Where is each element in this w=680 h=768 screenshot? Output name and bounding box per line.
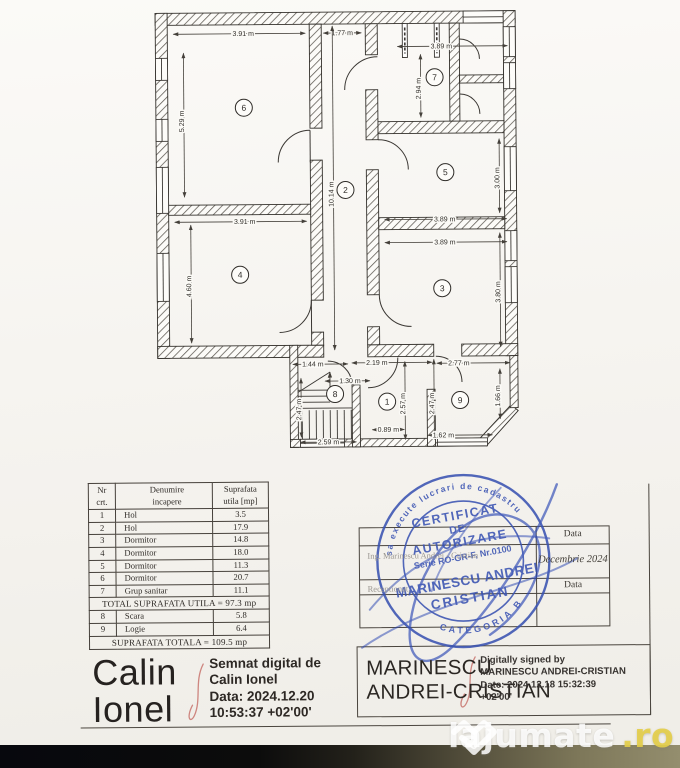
dimension-label: 0.89 m (378, 427, 400, 434)
table-row: 2Hol17.9 (89, 521, 269, 535)
room-table-body: 1Hol3.52Hol17.93Dormitor14.84Dormitor18.… (88, 508, 269, 649)
table-row: 7Grup sanitar11.1 (89, 584, 269, 598)
signer-left-name: Calin Ionel (92, 653, 177, 729)
dimension-label: 3.80 m (495, 281, 502, 303)
sig-line: MARINESCU ANDREI-CRISTIAN (480, 666, 626, 680)
svg-text:8: 8 (333, 389, 338, 399)
table-cell: 6.4 (213, 622, 269, 635)
dimension-label: 3.91 m (233, 31, 255, 38)
total-row: SUPRAFATA TOTALA = 109.5 mp (89, 635, 269, 650)
total-utila-row-cell: TOTAL SUPRAFATA UTILA = 97.3 mp (89, 596, 269, 611)
room-number: 1 (379, 393, 396, 410)
table-cell: 3 (89, 535, 116, 548)
approval-faint-name: Ing. Marinescu Andrei - Cristian (367, 549, 537, 560)
approval-faint-receptionat: Receptionat, (368, 583, 488, 594)
signer-left-name-line1: Calin (92, 653, 177, 691)
lajumate-watermark: lajumate .ro (448, 716, 674, 755)
sig-line: Digitally signed by (480, 654, 626, 668)
plan-room-numbers: 627543819 (230, 69, 469, 412)
dimension-line (397, 46, 507, 47)
table-row: 4Dormitor18.0 (89, 546, 269, 560)
svg-text:4: 4 (238, 270, 243, 280)
dimension-label: 3.89 m (434, 216, 456, 223)
dimension-label: 3.89 m (431, 43, 453, 50)
table-cell: 11.1 (213, 584, 269, 597)
table-cell: 3.5 (213, 508, 269, 521)
table-cell: 14.8 (213, 533, 269, 546)
table-cell: 7 (89, 585, 116, 598)
table-cell: Logie (116, 623, 213, 636)
date-value: Decembrie 2024 (537, 554, 608, 566)
room-number: 2 (337, 181, 354, 198)
sig-line: Date: 2024.12.18 15:32:39 (480, 679, 626, 693)
svg-text:1: 1 (385, 397, 390, 407)
table-cell: 2 (89, 522, 116, 535)
right-signature-details: Digitally signed by MARINESCU ANDREI-CRI… (480, 654, 626, 705)
table-cell: Hol (116, 509, 213, 522)
table-cell: 9 (89, 623, 116, 636)
left-signature-details: Semnat digital de Calin Ionel Data: 2024… (209, 655, 321, 722)
room-number: 7 (426, 69, 443, 86)
table-cell: 17.9 (213, 521, 269, 534)
table-cell: 6 (89, 572, 116, 585)
table-cell: 4 (89, 547, 116, 560)
table-cell: Grup sanitar (116, 584, 213, 597)
table-cell: Dormitor (116, 572, 213, 585)
room-number: 9 (452, 391, 469, 408)
table-row: 9Logie6.4 (89, 622, 269, 636)
dimension-label: 5.29 m (179, 111, 186, 133)
room-number: 3 (434, 280, 451, 297)
dimension-label: 2.47 m (429, 393, 436, 415)
signer-left-name-line2: Ionel (92, 691, 177, 729)
table-cell: Dormitor (116, 534, 213, 547)
sig-line: +02'00' (480, 691, 626, 705)
table-row: 1Hol3.5 (88, 508, 268, 522)
dimension-label: 2.59 m (318, 439, 340, 446)
col-header-nr: Nr crt. (88, 483, 115, 509)
table-cell: 20.7 (213, 571, 269, 584)
dimension-label: 4.60 m (186, 275, 193, 297)
table-cell: Dormitor (116, 546, 213, 559)
room-number: 8 (327, 385, 344, 402)
dimension-label: 1.66 m (495, 385, 502, 407)
dimension-label: 1.62 m (433, 432, 455, 439)
svg-text:5: 5 (443, 167, 448, 177)
dimension-label: 3.00 m (494, 167, 501, 189)
plan-thin-partitions (402, 23, 439, 57)
dimension-label: 10.14 m (328, 181, 335, 207)
dimension-label: 3.89 m (434, 239, 456, 246)
svg-text:7: 7 (432, 72, 437, 82)
lajumate-logo-icon (448, 716, 500, 760)
sig-line: Calin Ionel (209, 672, 321, 689)
total-utila-row: TOTAL SUPRAFATA UTILA = 97.3 mp (89, 596, 269, 611)
data-label-bottom: Data (538, 580, 609, 591)
col-header-area: Suprafata utila [mp] (212, 482, 268, 509)
dimension-label: 1.77 m (332, 30, 354, 37)
svg-text:9: 9 (458, 395, 463, 405)
room-number: 5 (437, 164, 454, 181)
watermark-tld: .ro (621, 716, 674, 755)
table-row: 3Dormitor14.8 (89, 533, 269, 547)
dimension-label: 2.77 m (448, 360, 470, 367)
table-cell: 5 (89, 560, 116, 573)
sig-line: Data: 2024.12.20 (209, 688, 321, 705)
sig-line: 10:53:37 +02'00' (210, 705, 322, 722)
table-row: 5Dormitor11.3 (89, 559, 269, 573)
table-row: 6Dormitor20.7 (89, 571, 269, 585)
svg-text:6: 6 (241, 103, 246, 113)
table-cell: 11.3 (213, 559, 269, 572)
dimension-label: 2.47 m (296, 399, 303, 421)
total-row-cell: SUPRAFATA TOTALA = 109.5 mp (89, 635, 269, 650)
dimension-label: 1.30 m (339, 378, 361, 385)
table-row: 8Scara5.8 (89, 610, 269, 624)
col-header-name: Denumire incapere (115, 483, 212, 510)
table-cell: Scara (116, 610, 213, 623)
svg-text:2: 2 (343, 185, 348, 195)
room-number: 6 (235, 99, 252, 116)
svg-text:3: 3 (440, 283, 445, 293)
dimension-line (352, 362, 432, 363)
sig-line: Semnat digital de (209, 655, 321, 672)
dimension-label: 2.19 m (366, 360, 388, 367)
table-cell: 18.0 (213, 546, 269, 559)
dimension-label: 3.91 m (234, 219, 256, 226)
dimension-label: 2.94 m (416, 78, 423, 100)
table-cell: 8 (89, 611, 116, 624)
room-number: 4 (232, 266, 249, 283)
table-cell: 1 (88, 509, 115, 522)
scanned-document-photo: 3.91 m1.77 m3.89 m5.29 m2.94 m10.14 m3.0… (0, 0, 680, 768)
dimension-label: 2.57 m (400, 393, 407, 415)
table-cell: Hol (116, 521, 213, 534)
plan-walls (155, 11, 518, 449)
room-area-table: Nr crt. Denumire incapere Suprafata util… (88, 482, 270, 650)
dimension-label: 1.44 m (302, 361, 324, 368)
table-cell: 5.8 (213, 610, 269, 623)
data-label-top: Data (537, 529, 608, 540)
table-cell: Dormitor (116, 559, 213, 572)
